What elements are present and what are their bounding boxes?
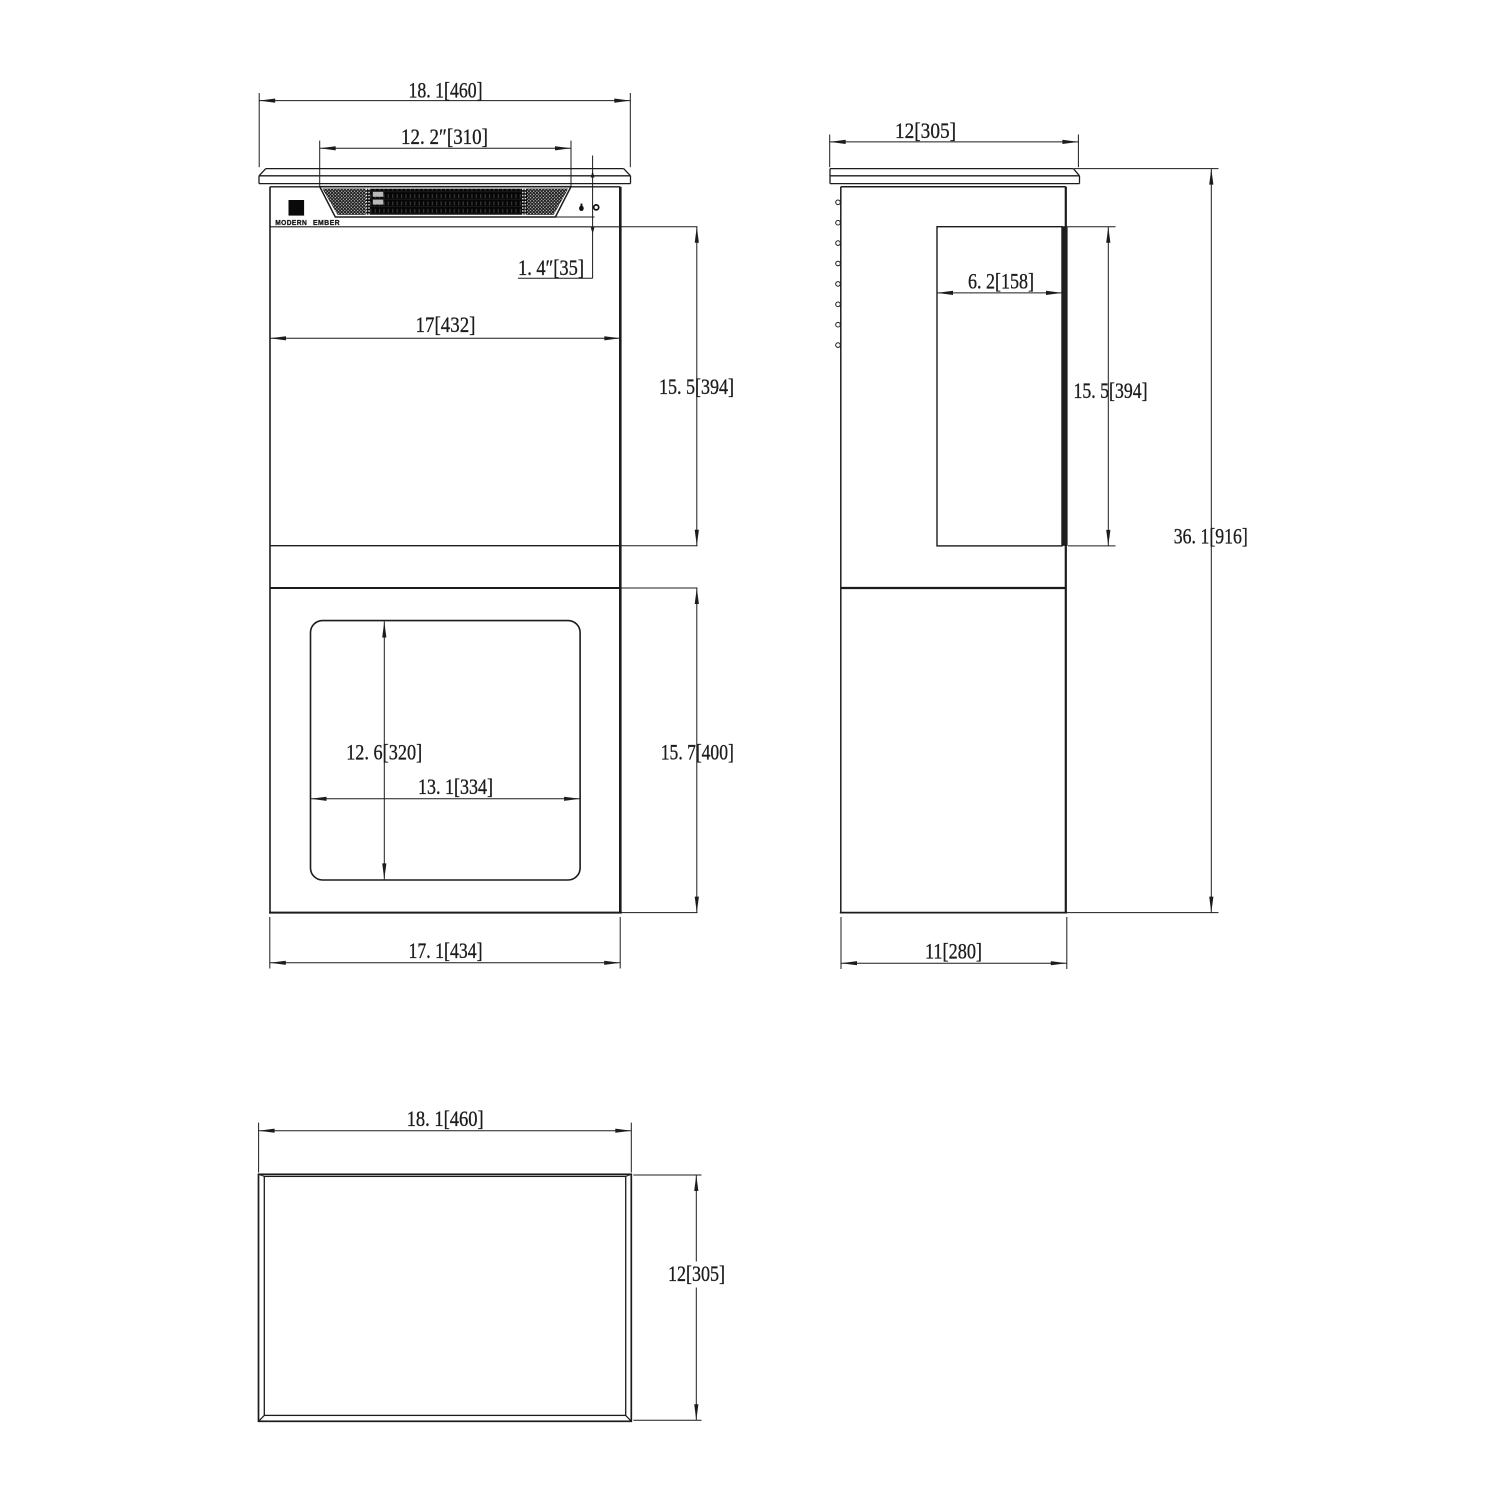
svg-text:17[432]: 17[432] bbox=[416, 312, 476, 337]
svg-text:6. 2[158]: 6. 2[158] bbox=[968, 269, 1034, 294]
svg-text:12[305]: 12[305] bbox=[668, 1261, 725, 1286]
svg-text:18. 1[460]: 18. 1[460] bbox=[407, 1106, 484, 1131]
svg-text:13. 1[334]: 13. 1[334] bbox=[418, 774, 493, 799]
svg-text:12. 2″[310]: 12. 2″[310] bbox=[401, 124, 488, 149]
svg-text:15. 5[394]: 15. 5[394] bbox=[1074, 378, 1148, 403]
svg-text:17. 1[434]: 17. 1[434] bbox=[409, 938, 483, 963]
svg-text:11[280]: 11[280] bbox=[925, 939, 982, 964]
svg-text:36. 1[916]: 36. 1[916] bbox=[1174, 524, 1248, 549]
svg-text:15. 7[400]: 15. 7[400] bbox=[661, 740, 734, 765]
svg-text:EMBER: EMBER bbox=[313, 220, 340, 227]
svg-text:12. 6[320]: 12. 6[320] bbox=[346, 740, 422, 765]
svg-text:15. 5[394]: 15. 5[394] bbox=[659, 374, 734, 399]
svg-text:1. 4″[35]: 1. 4″[35] bbox=[518, 255, 584, 280]
svg-text:12[305]: 12[305] bbox=[895, 118, 956, 143]
svg-text:MODERN: MODERN bbox=[275, 220, 307, 227]
svg-text:18. 1[460]: 18. 1[460] bbox=[409, 78, 483, 103]
